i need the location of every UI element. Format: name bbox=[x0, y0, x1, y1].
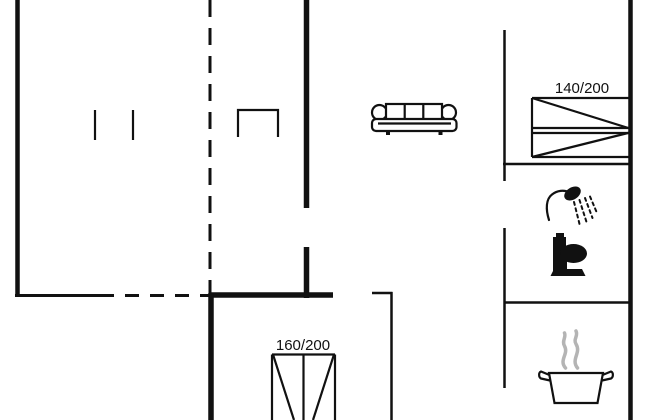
bed-size-label-160: 160/200 bbox=[276, 337, 330, 354]
dashed-partitions bbox=[100, 0, 210, 296]
shower-spray-3 bbox=[585, 198, 593, 218]
bed140-duvet-diagonal-top bbox=[532, 98, 630, 129]
fireplace-outline bbox=[238, 110, 278, 137]
sofa-leg-right bbox=[439, 131, 443, 135]
shower-icon bbox=[547, 184, 597, 226]
pot-body bbox=[549, 373, 603, 403]
steam-wisp-right bbox=[575, 331, 578, 368]
fireplace-icon bbox=[238, 110, 278, 137]
walls bbox=[15, 0, 631, 420]
shower-spray-1 bbox=[574, 202, 580, 226]
bed160-duvet-diagonal-right bbox=[313, 355, 334, 420]
shower-spray-4 bbox=[590, 197, 597, 214]
floor-plan: 140/200 160/200 bbox=[0, 0, 650, 420]
bed-size-label-140: 140/200 bbox=[555, 80, 609, 97]
steam-wisp-left bbox=[563, 333, 566, 368]
cooking-pot-icon bbox=[539, 331, 613, 403]
door-opening-marks bbox=[95, 110, 133, 140]
toilet-pedestal bbox=[553, 255, 567, 271]
bed160-duvet-diagonal-left bbox=[273, 355, 294, 420]
sofa-seat bbox=[372, 119, 457, 131]
double-bed-160: 160/200 bbox=[272, 337, 335, 420]
shower-spray-2 bbox=[580, 200, 587, 222]
double-bed-140: 140/200 bbox=[532, 80, 630, 157]
toilet-icon bbox=[551, 233, 588, 276]
sofa-arm-left bbox=[372, 105, 387, 120]
sofa-arm-right bbox=[441, 105, 456, 120]
bed140-duvet-diagonal-bottom bbox=[532, 133, 630, 158]
sofa-leg-left bbox=[386, 131, 390, 135]
toilet-base bbox=[551, 269, 586, 276]
sofa-icon bbox=[372, 104, 457, 135]
